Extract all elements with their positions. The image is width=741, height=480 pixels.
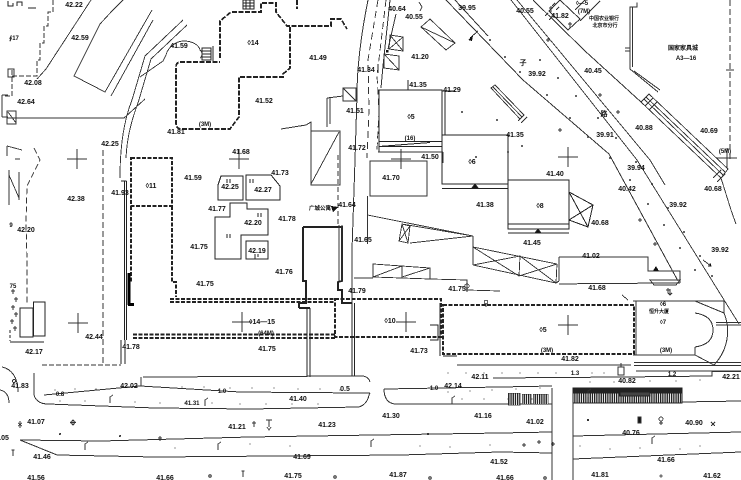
svg-text:(3M): (3M) [199,122,211,128]
svg-text:42.38: 42.38 [67,196,85,203]
svg-text:41.62: 41.62 [703,473,721,480]
svg-text:39.91: 39.91 [596,132,614,139]
svg-text:41.69: 41.69 [293,454,311,461]
svg-text:40.55: 40.55 [516,8,534,15]
svg-text:41.64: 41.64 [338,202,356,209]
svg-text:42.44: 42.44 [85,334,103,341]
svg-text:41.56: 41.56 [27,475,45,480]
svg-text:41.52: 41.52 [490,459,508,466]
svg-text:41.46: 41.46 [33,454,51,461]
svg-text:41.81: 41.81 [167,129,185,136]
svg-text:41.78: 41.78 [278,216,296,223]
svg-text:41.38: 41.38 [476,202,494,209]
svg-text:.05: .05 [0,435,9,442]
svg-text:41.40: 41.40 [289,396,307,403]
svg-text:41.52: 41.52 [255,98,273,105]
svg-text:◊14—15: ◊14—15 [249,319,275,326]
svg-text:41.45: 41.45 [523,240,541,247]
svg-text:广城公寓: 广城公寓 [309,204,332,212]
svg-text:42.64: 42.64 [17,99,35,106]
svg-text:41.31: 41.31 [184,401,200,407]
svg-text:40.64: 40.64 [388,6,406,13]
svg-text:75: 75 [10,284,17,290]
svg-text:1.0: 1.0 [218,389,227,395]
svg-text:42.20: 42.20 [17,227,35,234]
svg-text:42.22: 42.22 [65,2,83,9]
svg-text:40.68: 40.68 [704,186,722,193]
svg-text:39.92: 39.92 [711,247,729,254]
svg-text:41.76: 41.76 [275,269,293,276]
svg-text:41.30: 41.30 [382,413,400,420]
svg-text:40.55: 40.55 [405,14,423,21]
svg-text:41.21: 41.21 [228,424,246,431]
svg-text:42.08: 42.08 [24,80,42,87]
svg-text:A3—16: A3—16 [676,56,697,62]
svg-text:41.20: 41.20 [411,54,429,61]
svg-text:40.76: 40.76 [622,430,640,437]
svg-text:1.2: 1.2 [668,372,677,378]
svg-text:国家家具城: 国家家具城 [668,44,698,52]
svg-text:41.66: 41.66 [156,475,174,480]
svg-text:◊11: ◊11 [146,183,157,190]
svg-text:41.34: 41.34 [357,67,375,74]
svg-text:42.11: 42.11 [471,374,488,381]
svg-text:41.02: 41.02 [526,419,544,426]
svg-text:42.02: 42.02 [120,383,138,390]
svg-text:39.95: 39.95 [458,5,476,12]
svg-text:∮17: ∮17 [9,35,19,42]
svg-text:42.21: 42.21 [722,374,740,381]
svg-text:◊—5: ◊—5 [576,0,589,7]
svg-text:41.49: 41.49 [309,55,327,62]
svg-text:41.23: 41.23 [318,422,336,429]
svg-text:41.29: 41.29 [443,87,461,94]
svg-text:41.50: 41.50 [421,154,439,161]
svg-text:40.90: 40.90 [685,420,703,427]
svg-text:◊10: ◊10 [384,318,395,325]
svg-text:42.25: 42.25 [221,184,239,191]
svg-text:41.77: 41.77 [208,206,226,213]
svg-text:42.25: 42.25 [101,141,119,148]
svg-text:41.75: 41.75 [448,286,466,293]
svg-text:41.68: 41.68 [232,149,250,156]
svg-text:41.87: 41.87 [389,472,407,479]
svg-text:◊8: ◊8 [536,203,543,210]
svg-text:41.35: 41.35 [409,82,427,89]
svg-text:41.59: 41.59 [184,175,202,182]
svg-text:41.79: 41.79 [348,288,366,295]
svg-text:1.0: 1.0 [430,386,439,392]
svg-text:42.17: 42.17 [25,349,43,356]
svg-text:恒升大厦: 恒升大厦 [649,308,670,315]
svg-text:41.82: 41.82 [561,356,579,363]
svg-text:41.65: 41.65 [354,237,372,244]
svg-text:41.35: 41.35 [506,132,524,139]
svg-text:41.40: 41.40 [546,171,564,178]
svg-text:41.68: 41.68 [588,285,606,292]
svg-text:39.94: 39.94 [627,165,645,172]
svg-text:41.82: 41.82 [551,13,569,20]
svg-text:41.02: 41.02 [582,253,600,260]
svg-text:41.73: 41.73 [271,170,289,177]
svg-text:(3M): (3M) [660,348,672,354]
svg-text:41.66: 41.66 [657,457,675,464]
svg-text:◊7: ◊7 [660,319,667,326]
svg-text:子: 子 [520,59,527,67]
svg-text:41.75: 41.75 [258,346,276,353]
svg-text:39.92: 39.92 [528,71,546,78]
svg-text:◊6: ◊6 [468,159,475,166]
svg-text:39.92: 39.92 [669,202,687,209]
svg-text:0.8: 0.8 [56,392,65,398]
svg-text:(3M): (3M) [541,348,553,354]
svg-text:41.70: 41.70 [382,175,400,182]
svg-text:41.07: 41.07 [27,419,45,426]
svg-text:中国农业银行: 中国农业银行 [589,15,619,22]
svg-text:42.14: 42.14 [444,383,462,390]
svg-text:41.93: 41.93 [111,190,129,197]
svg-text:1.3: 1.3 [571,371,580,377]
svg-text:(7M): (7M) [578,9,590,15]
svg-text:41.75: 41.75 [196,281,214,288]
svg-text:(5M): (5M) [719,149,731,155]
svg-text:40.82: 40.82 [618,378,636,385]
svg-text:路: 路 [601,109,609,118]
svg-text:41.66: 41.66 [496,475,514,480]
svg-text:(16): (16) [405,136,416,142]
svg-text:北京市分行: 北京市分行 [592,22,617,29]
svg-text:41.83: 41.83 [11,383,29,390]
svg-text:40.88: 40.88 [635,125,653,132]
svg-text:41.78: 41.78 [122,344,140,351]
svg-text:41.72: 41.72 [348,145,366,152]
svg-text:◊6: ◊6 [660,301,667,308]
svg-text:42.19: 42.19 [248,248,266,255]
svg-text:41.75: 41.75 [284,473,302,480]
svg-text:◊14: ◊14 [247,40,258,47]
svg-text:◊5: ◊5 [407,114,414,121]
svg-text:41.16: 41.16 [474,413,492,420]
svg-text:(64M): (64M) [258,331,274,337]
svg-text:41.73: 41.73 [410,348,428,355]
svg-text:40.68: 40.68 [591,220,609,227]
svg-text:41.75: 41.75 [190,244,208,251]
svg-text:40.69: 40.69 [700,128,718,135]
svg-text:42.20: 42.20 [244,220,262,227]
svg-text:40.45: 40.45 [584,68,602,75]
svg-text:41.59: 41.59 [170,43,188,50]
svg-text:41.51: 41.51 [346,108,364,115]
svg-text:◊5: ◊5 [539,327,546,334]
svg-text:42.27: 42.27 [254,187,272,194]
svg-text:40.42: 40.42 [618,186,636,193]
svg-text:0.5: 0.5 [340,386,350,393]
svg-text:41.81: 41.81 [591,472,609,479]
svg-text:42.59: 42.59 [71,35,89,42]
